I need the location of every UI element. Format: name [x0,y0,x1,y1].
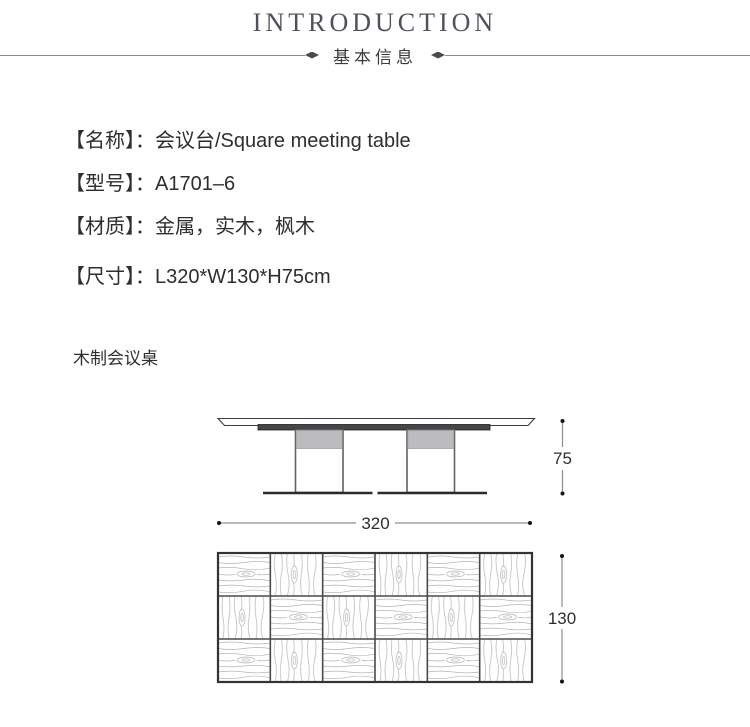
depth-dimension: 130 [548,554,576,684]
wood-panel-h [323,553,375,596]
wood-panel-v [270,639,322,682]
wood-panel-v [270,553,322,596]
wood-panel-v [375,553,427,596]
spec-model: 【型号】：A1701–6 [65,172,411,197]
tabletop-apron [258,425,490,431]
drawing-caption: 木制会议桌 [73,344,158,369]
spec-size: 【尺寸】：L320*W130*H75cm [65,265,411,290]
wood-panel-v [375,639,427,682]
right-leg [407,430,455,493]
wood-panel-v [480,553,532,596]
page: { "header": { "title": "INTRODUCTION", "… [0,0,750,727]
wood-panel-h [218,639,270,682]
wood-panel-h [270,596,322,639]
wood-panel-h [375,596,427,639]
left-divider-line [0,55,305,56]
left-diamond-icon [305,52,319,59]
subtitle-text: 基本信息 [319,43,431,68]
wood-panel-v [480,639,532,682]
wood-panel-h [427,639,479,682]
top-view-drawing [218,553,532,682]
right-divider-line [445,55,750,56]
height-dimension-label: 75 [553,449,572,468]
height-dimension: 75 [553,419,572,496]
right-diamond-icon [431,52,445,59]
wood-panel-h [480,596,532,639]
spec-name: 【名称】：会议台/Square meeting table [65,129,411,154]
width-dimension-label: 320 [361,514,389,533]
width-dimension: 320 [217,514,532,533]
spec-material: 【材质】：金属，实木，枫木 [65,215,411,240]
left-leg [296,430,344,493]
depth-dimension-label: 130 [548,609,576,628]
wood-panel-h [218,553,270,596]
front-view-drawing [218,419,535,494]
wood-panel-v [427,596,479,639]
wood-panel-v [218,596,270,639]
technical-drawing: 75 320 130 [0,400,750,727]
spec-list: 【名称】：会议台/Square meeting table 【型号】：A1701… [65,129,411,308]
wood-panel-h [427,553,479,596]
wood-panel-v [323,596,375,639]
wood-panel-h [323,639,375,682]
page-title: INTRODUCTION [0,8,750,38]
subtitle-row: 基本信息 [0,43,750,67]
